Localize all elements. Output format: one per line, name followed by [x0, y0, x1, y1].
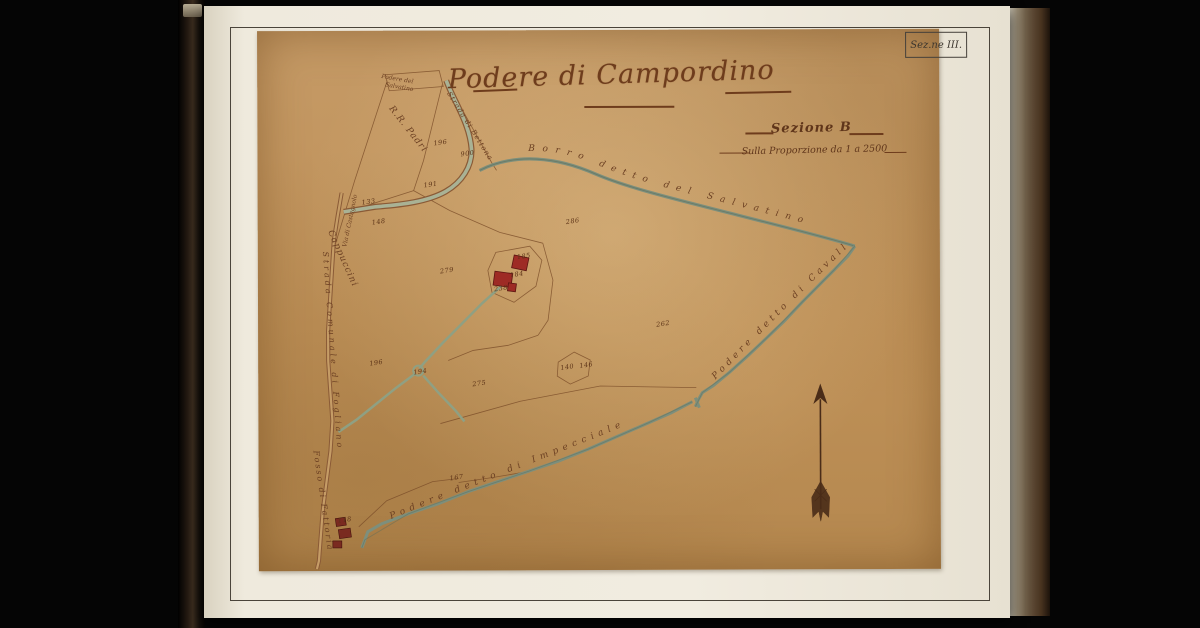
map-label: Strada Comunale di Fogliano: [321, 251, 344, 450]
parcel-number: 196: [369, 358, 384, 368]
parcel-number: 146: [579, 360, 594, 370]
parcel-number: 184: [509, 269, 524, 279]
scanned-book-photo: Borro detto del SalvatinoPodere detto di…: [0, 0, 1200, 628]
parcel-number: 286: [565, 216, 580, 226]
map-label-layer: Podere delSalvatinoR.R. PadriCappucciniS…: [257, 29, 941, 571]
book-spine: [178, 0, 205, 628]
book-spine-notch: [183, 4, 202, 17]
parcel-number: 185: [516, 251, 531, 261]
parcel-number: 133: [361, 197, 376, 207]
parcel-number: 238: [493, 283, 508, 293]
parcel-number: 900: [460, 149, 475, 159]
parcel-number: 148: [371, 217, 386, 227]
parcel-number: 140: [560, 362, 575, 372]
parcel-number: 191: [423, 180, 438, 190]
map-label: Fosso di Fattoria: [311, 450, 333, 552]
parcel-number: 194: [413, 367, 428, 377]
map-label: Via di Castagnolo: [342, 194, 359, 247]
parcel-number: 262: [656, 319, 671, 329]
map-sheet: Borro detto del SalvatinoPodere detto di…: [257, 29, 941, 571]
book-page-edges: [1010, 8, 1050, 616]
map-label: R.R. Padri: [387, 105, 429, 155]
parcel-number: 167: [449, 473, 464, 483]
parcel-number: 279: [439, 266, 454, 276]
album-page: Borro detto del SalvatinoPodere detto di…: [204, 6, 1010, 618]
parcel-number: 196: [433, 138, 448, 148]
parcel-number: 275: [472, 378, 487, 388]
parcel-number: 118: [337, 515, 352, 525]
